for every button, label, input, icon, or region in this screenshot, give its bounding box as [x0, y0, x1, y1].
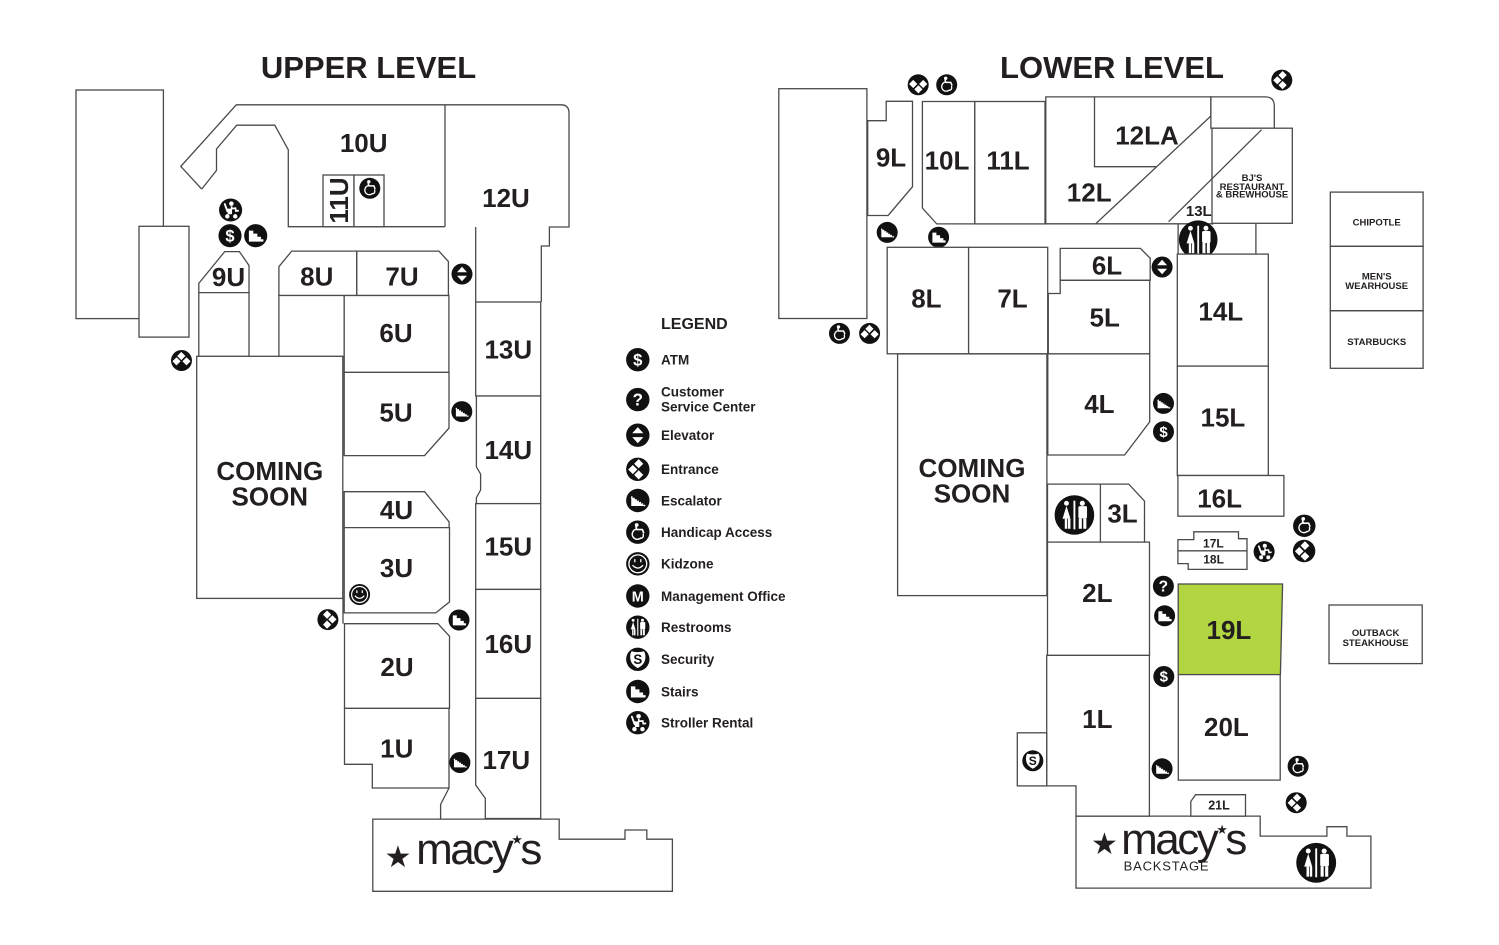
svg-text:17U: 17U	[482, 745, 530, 775]
svg-text:21L: 21L	[1208, 798, 1230, 812]
svg-text:STEAKHOUSE: STEAKHOUSE	[1343, 638, 1409, 649]
svg-text:2U: 2U	[380, 652, 413, 682]
svg-text:1L: 1L	[1082, 704, 1112, 734]
svg-text:SOON: SOON	[232, 481, 309, 511]
svg-text:16L: 16L	[1197, 483, 1242, 513]
svg-text:macy★s: macy★s	[416, 825, 541, 874]
svg-text:UPPER LEVEL: UPPER LEVEL	[261, 50, 476, 85]
svg-text:7L: 7L	[997, 284, 1027, 314]
svg-text:14U: 14U	[484, 435, 532, 465]
svg-text:12L: 12L	[1067, 178, 1112, 208]
svg-text:★: ★	[385, 841, 412, 874]
svg-text:ATM: ATM	[661, 353, 689, 368]
svg-text:5L: 5L	[1090, 303, 1120, 333]
svg-text:BACKSTAGE: BACKSTAGE	[1124, 858, 1210, 873]
svg-text:6U: 6U	[379, 318, 412, 348]
svg-text:Escalator: Escalator	[661, 493, 723, 508]
svg-text:4L: 4L	[1084, 389, 1114, 419]
svg-text:7U: 7U	[385, 262, 418, 292]
svg-text:20L: 20L	[1204, 712, 1249, 742]
svg-text:4U: 4U	[380, 495, 413, 525]
svg-text:& BREWHOUSE: & BREWHOUSE	[1216, 190, 1288, 201]
svg-text:macy★s: macy★s	[1121, 815, 1246, 864]
svg-text:8L: 8L	[911, 284, 941, 314]
svg-text:Elevator: Elevator	[661, 428, 715, 443]
svg-text:Kidzone: Kidzone	[661, 557, 714, 572]
svg-text:15U: 15U	[484, 532, 532, 562]
svg-text:LOWER LEVEL: LOWER LEVEL	[1000, 50, 1224, 85]
svg-text:WEARHOUSE: WEARHOUSE	[1345, 281, 1408, 292]
svg-text:Stairs: Stairs	[661, 684, 699, 699]
svg-text:Service Center: Service Center	[661, 400, 756, 415]
svg-text:11L: 11L	[986, 145, 1029, 175]
svg-text:CHIPOTLE: CHIPOTLE	[1353, 218, 1401, 229]
svg-text:19L: 19L	[1206, 615, 1251, 645]
svg-text:16U: 16U	[484, 629, 532, 659]
svg-text:LEGEND: LEGEND	[661, 316, 728, 333]
svg-text:★: ★	[1091, 828, 1118, 861]
svg-text:12U: 12U	[482, 183, 530, 213]
svg-text:5U: 5U	[379, 397, 412, 427]
svg-text:STARBUCKS: STARBUCKS	[1347, 337, 1406, 348]
svg-text:10L: 10L	[925, 145, 970, 175]
svg-text:Handicap Access: Handicap Access	[661, 525, 772, 540]
svg-text:Restrooms: Restrooms	[661, 620, 732, 635]
svg-text:13L: 13L	[1186, 203, 1212, 220]
svg-text:11U: 11U	[324, 177, 354, 223]
svg-text:Stroller Rental: Stroller Rental	[661, 716, 753, 731]
svg-text:Entrance: Entrance	[661, 462, 719, 477]
svg-text:13U: 13U	[484, 334, 532, 364]
svg-text:SOON: SOON	[934, 478, 1011, 508]
svg-text:9U: 9U	[212, 262, 245, 292]
svg-text:18L: 18L	[1203, 553, 1224, 567]
svg-text:Management Office: Management Office	[661, 589, 786, 604]
svg-text:3L: 3L	[1107, 498, 1137, 528]
svg-text:2L: 2L	[1082, 578, 1112, 608]
svg-text:6L: 6L	[1092, 250, 1122, 280]
svg-text:17L: 17L	[1203, 536, 1224, 550]
svg-text:8U: 8U	[300, 262, 333, 292]
svg-text:Security: Security	[661, 652, 715, 667]
svg-text:3U: 3U	[380, 553, 413, 583]
svg-text:12LA: 12LA	[1115, 120, 1179, 150]
svg-text:15L: 15L	[1200, 402, 1245, 432]
svg-text:10U: 10U	[340, 128, 388, 158]
svg-text:Customer: Customer	[661, 385, 725, 400]
svg-text:1U: 1U	[380, 734, 413, 764]
svg-text:14L: 14L	[1198, 296, 1243, 326]
svg-text:9L: 9L	[876, 143, 906, 173]
